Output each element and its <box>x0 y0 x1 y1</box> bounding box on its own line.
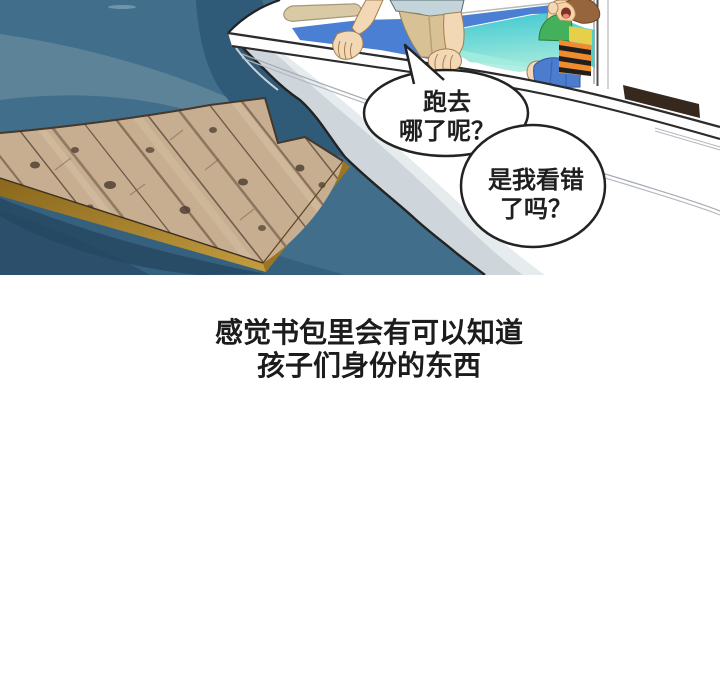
vest-black-stripes <box>559 45 591 76</box>
caption-line2: 孩子们身份的东西 <box>9 349 720 382</box>
sea-wave-fleck <box>108 5 136 9</box>
child-tongue <box>563 14 570 18</box>
speech-bubble-1-text: 跑去 哪了呢？ <box>362 88 532 146</box>
narration-caption: 感觉书包里会有可以知道 孩子们身份的东西 <box>9 316 720 382</box>
child-fist <box>548 2 558 14</box>
bubble2-line2: 了吗？ <box>451 195 621 224</box>
panel-artwork <box>0 0 720 275</box>
webtoon-page: 跑去 哪了呢？ 是我看错 了吗？ 感觉书包里会有可以知道 孩子们身份的东西 <box>0 0 720 700</box>
bubble2-line1: 是我看错 <box>451 166 621 195</box>
bubble1-line1: 跑去 <box>362 88 532 117</box>
bubble1-line2: 哪了呢？ <box>362 117 532 146</box>
speech-bubble-2-text: 是我看错 了吗？ <box>451 166 621 224</box>
caption-line1: 感觉书包里会有可以知道 <box>9 316 720 349</box>
comic-panel-illustration: 跑去 哪了呢？ 是我看错 了吗？ <box>0 0 720 275</box>
